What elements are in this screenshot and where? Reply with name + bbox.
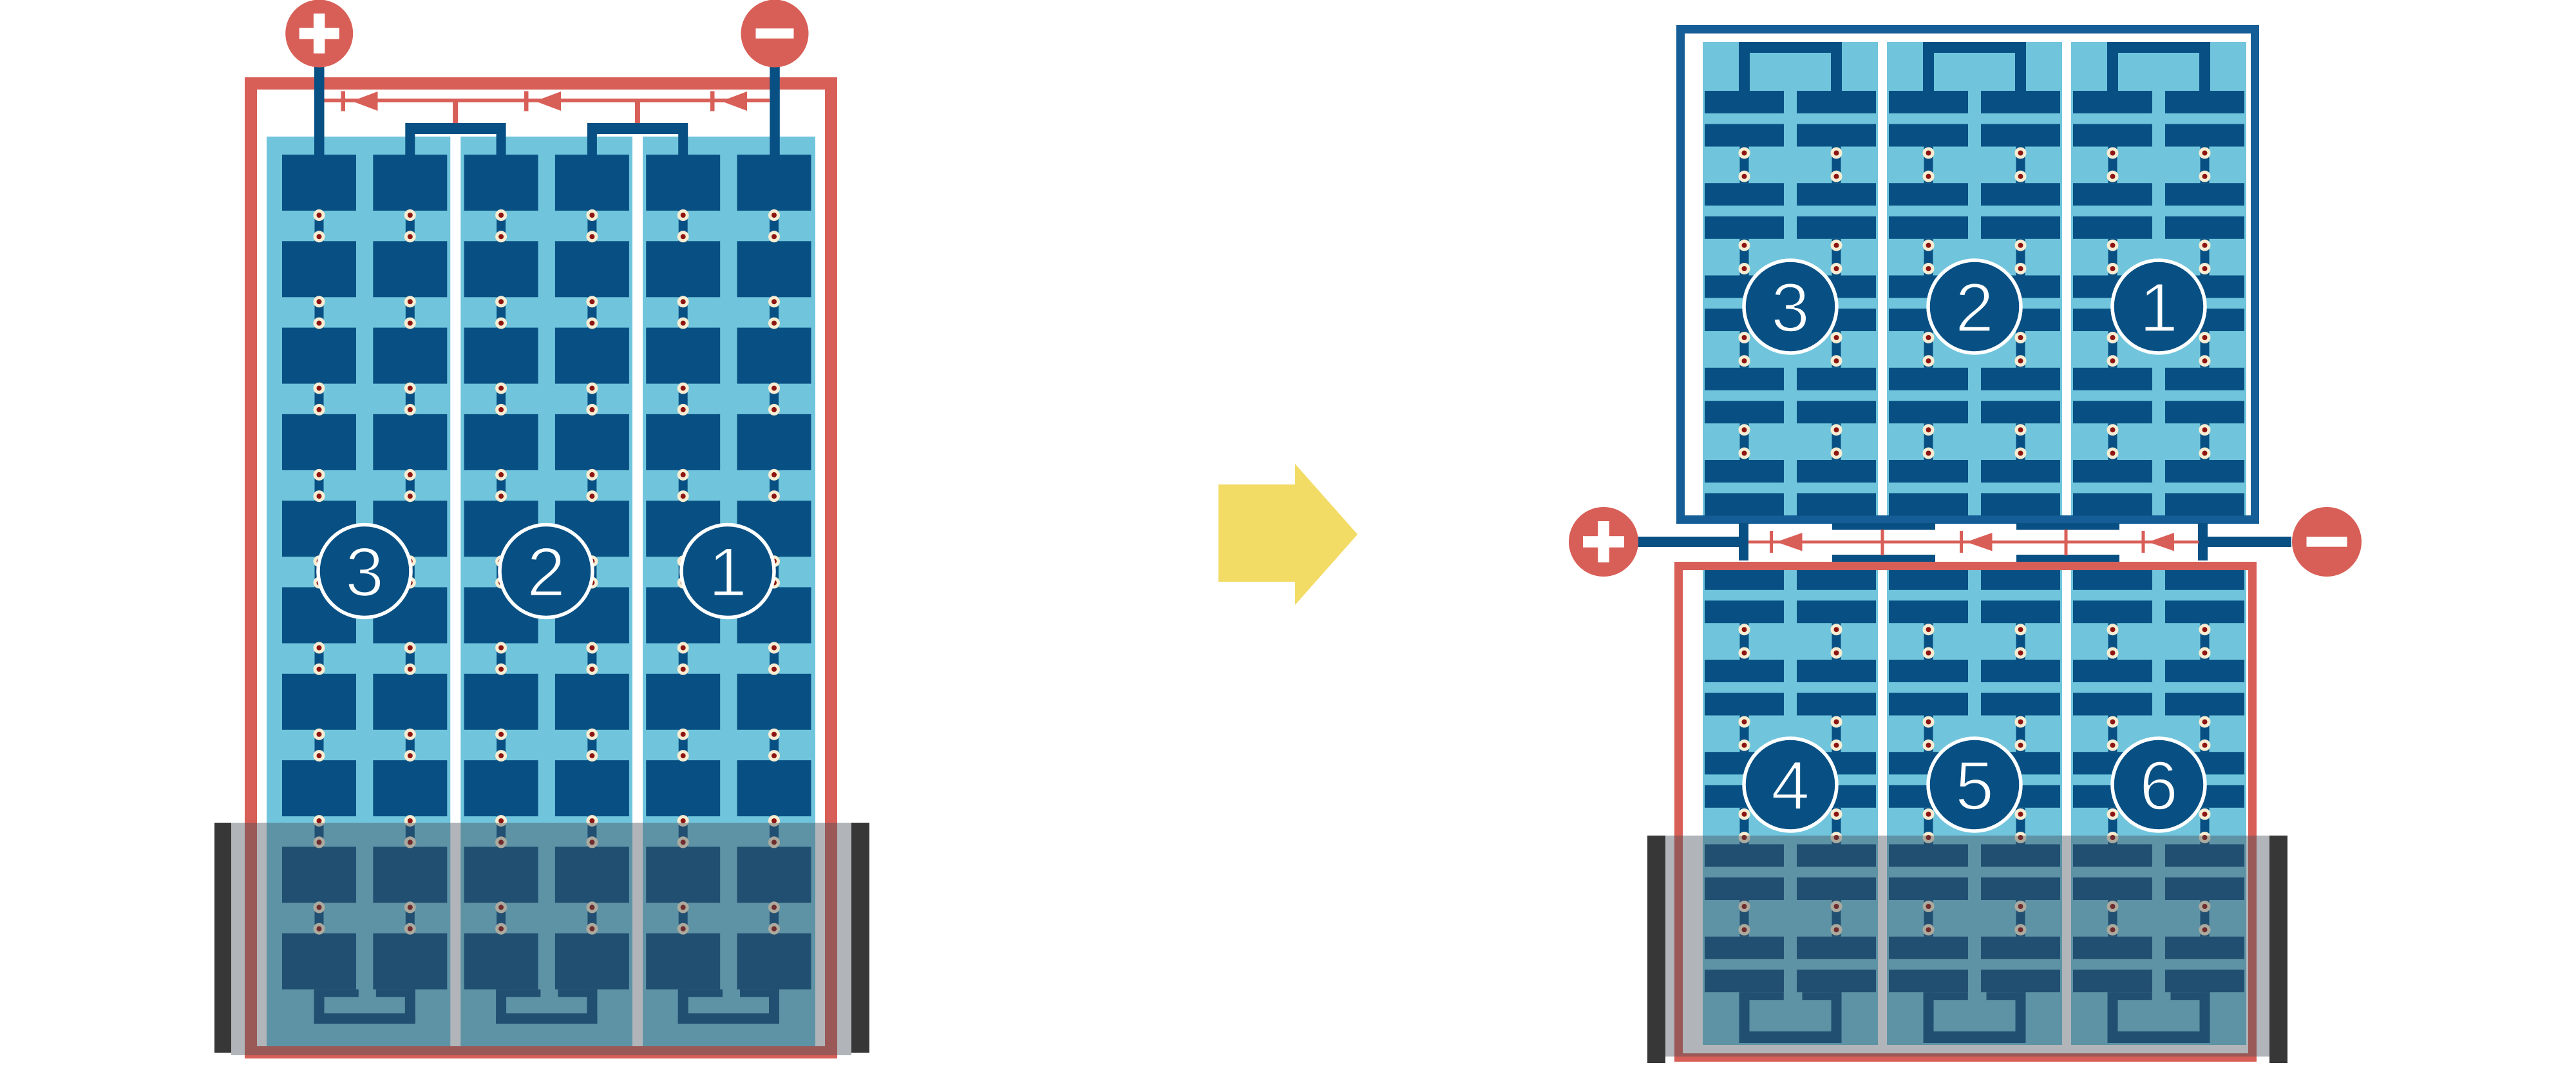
svg-text:2: 2 — [1955, 269, 1994, 347]
svg-text:3: 3 — [1771, 269, 1810, 347]
svg-text:6: 6 — [2139, 747, 2178, 825]
svg-text:1: 1 — [708, 533, 747, 611]
svg-text:4: 4 — [1771, 747, 1810, 825]
svg-text:1: 1 — [2139, 269, 2178, 347]
svg-text:3: 3 — [345, 533, 384, 611]
svg-text:5: 5 — [1955, 747, 1994, 825]
svg-text:2: 2 — [527, 533, 565, 611]
